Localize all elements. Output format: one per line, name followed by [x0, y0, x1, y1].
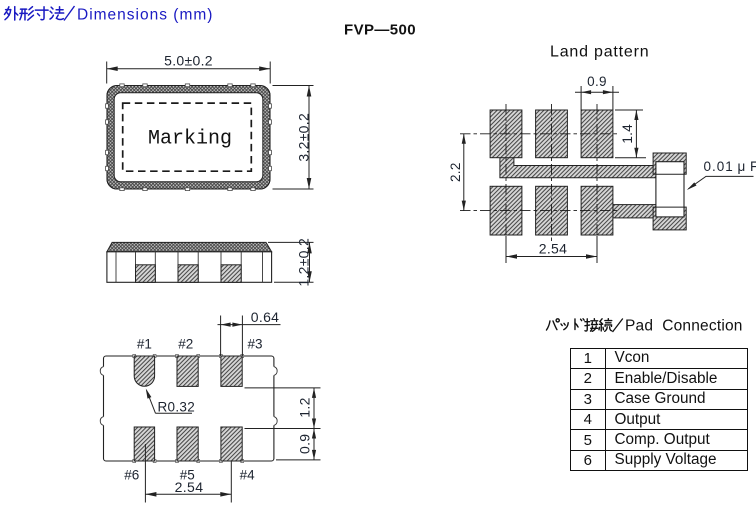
svg-text:#3: #3 — [247, 337, 262, 352]
svg-text:Land pattern: Land pattern — [550, 44, 649, 61]
svg-text:5.0±0.2: 5.0±0.2 — [164, 53, 213, 69]
svg-text:2.54: 2.54 — [175, 479, 204, 495]
svg-text:3.2±0.2: 3.2±0.2 — [296, 113, 312, 162]
svg-text:Marking: Marking — [148, 128, 232, 151]
svg-text:1.2: 1.2 — [296, 397, 312, 417]
svg-text:Dimensions (mm): Dimensions (mm) — [77, 6, 213, 23]
svg-text:#2: #2 — [178, 336, 193, 351]
svg-text:0.9: 0.9 — [296, 434, 312, 454]
svg-text:#1: #1 — [137, 336, 152, 351]
svg-text:#6: #6 — [124, 467, 139, 482]
svg-text:0.01 μ F: 0.01 μ F — [704, 159, 756, 174]
svg-text:Pad Connection: Pad Connection — [625, 318, 743, 335]
svg-text:2.2: 2.2 — [448, 162, 463, 182]
svg-text:0.64: 0.64 — [251, 309, 279, 325]
svg-text:#4: #4 — [240, 467, 256, 482]
svg-text:R0.32: R0.32 — [158, 400, 196, 415]
svg-text:1.2±0.2: 1.2±0.2 — [295, 238, 311, 287]
svg-text:FVP—500: FVP—500 — [344, 22, 416, 39]
svg-text:0.9: 0.9 — [587, 74, 607, 89]
svg-text:1.4: 1.4 — [620, 124, 635, 144]
svg-text:2.54: 2.54 — [539, 241, 567, 257]
